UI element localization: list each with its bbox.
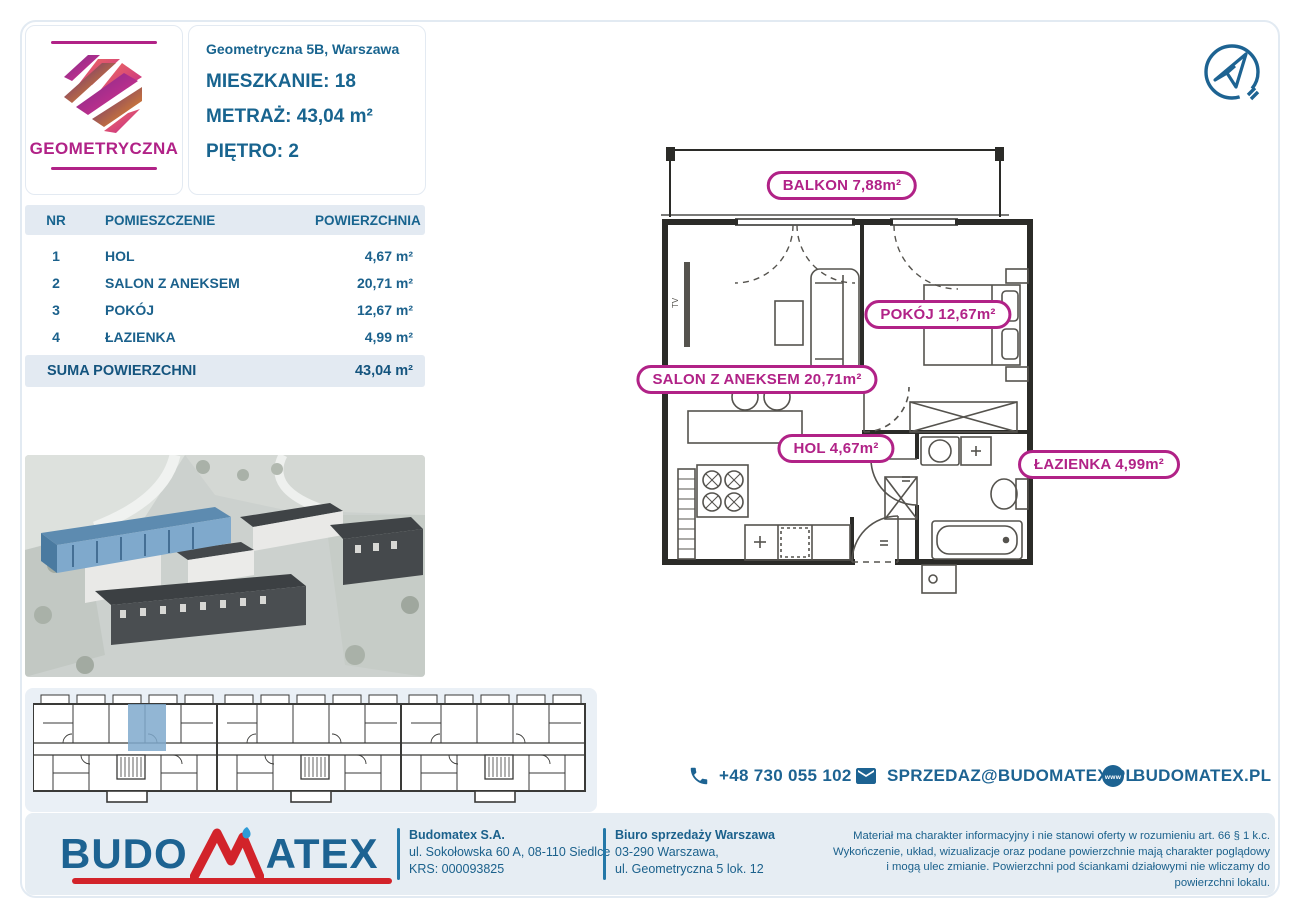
row-area: 4,99 m² <box>315 329 425 345</box>
footer-office-block: Biuro sprzedaży Warszawa 03-290 Warszawa… <box>615 827 775 878</box>
row-room: POKÓJ <box>87 302 315 318</box>
row-nr: 2 <box>25 275 87 291</box>
building-level-plan <box>33 693 589 805</box>
plan-label-hol: HOL 4,67m² <box>777 434 894 463</box>
apartment-area-label: METRAŻ: <box>206 106 291 127</box>
col-header-room: POMIESZCZENIE <box>87 213 315 228</box>
logo-rule-bottom <box>51 167 157 170</box>
budomatex-logo: BUDO ATEX <box>60 822 379 886</box>
company-address: ul. Sokołowska 60 A, 08-110 Siedlce <box>409 844 610 861</box>
apartment-area-line: METRAŻ: 43,04 m² <box>206 106 425 128</box>
developer-logo-card: GEOMETRYCZNA <box>25 25 183 195</box>
row-area: 4,67 m² <box>315 248 425 264</box>
plan-label-lazienka: ŁAZIENKA 4,99m² <box>1018 450 1180 479</box>
col-header-area: POWIERZCHNIA <box>315 213 425 228</box>
website-url: BUDOMATEX.PL <box>1133 766 1271 786</box>
logo-rule-top <box>51 41 157 44</box>
apartment-number-value: 18 <box>335 71 356 92</box>
office-name: Biuro sprzedaży Warszawa <box>615 827 775 844</box>
company-krs: KRS: 000093825 <box>409 861 610 878</box>
contact-email[interactable]: SPRZEDAZ@BUDOMATEX.PL <box>854 762 1136 790</box>
row-nr: 3 <box>25 302 87 318</box>
row-nr: 4 <box>25 329 87 345</box>
building-address: Geometryczna 5B, Warszawa <box>206 41 425 57</box>
contact-phone[interactable]: +48 730 055 102 <box>688 762 852 790</box>
apartment-floor-label: PIĘTRO: <box>206 141 283 162</box>
row-room: SALON Z ANEKSEM <box>87 275 315 291</box>
rooms-table-sum-row: SUMA POWIERZCHNI 43,04 m² <box>25 355 425 387</box>
building-level-plan-panel <box>25 688 597 812</box>
apartment-number-label: MIESZKANIE: <box>206 71 330 92</box>
aerial-photo <box>25 455 425 677</box>
www-icon: www <box>1102 765 1124 787</box>
footer-separator <box>603 828 606 880</box>
apartment-info-card: Geometryczna 5B, Warszawa MIESZKANIE: 18… <box>188 25 426 195</box>
phone-icon <box>688 765 710 787</box>
plan-label-salon: SALON Z ANEKSEM 20,71m² <box>636 365 877 394</box>
table-row: 2 SALON Z ANEKSEM 20,71 m² <box>25 269 425 296</box>
mail-icon <box>854 764 878 788</box>
email-address: SPRZEDAZ@BUDOMATEX.PL <box>887 766 1136 786</box>
tv-symbol <box>684 262 690 347</box>
table-row: 1 HOL 4,67 m² <box>25 242 425 269</box>
sum-label: SUMA POWIERZCHNI <box>25 363 355 379</box>
footer-disclaimer: Materiał ma charakter informacyjny i nie… <box>828 829 1270 891</box>
highlighted-unit <box>128 704 166 751</box>
geometryczna-logo-icon <box>58 51 150 137</box>
apartment-floor-value: 2 <box>288 141 299 162</box>
office-line2: ul. Geometryczna 5 lok. 12 <box>615 861 775 878</box>
company-name: Budomatex S.A. <box>409 827 610 844</box>
row-room: HOL <box>87 248 315 264</box>
budomatex-logo-m-icon <box>190 825 264 883</box>
footer-separator <box>397 828 400 880</box>
tv-label: TV <box>671 297 680 308</box>
row-area: 20,71 m² <box>315 275 425 291</box>
apartment-number-line: MIESZKANIE: 18 <box>206 71 425 93</box>
budomatex-logo-right: ATEX <box>266 833 379 875</box>
plan-label-balkon: BALKON 7,88m² <box>767 171 917 200</box>
table-row: 4 ŁAZIENKA 4,99 m² <box>25 323 425 350</box>
apartment-floor-line: PIĘTRO: 2 <box>206 141 425 163</box>
col-header-nr: NR <box>25 213 87 228</box>
row-nr: 1 <box>25 248 87 264</box>
developer-brand-name: GEOMETRYCZNA <box>26 139 182 159</box>
budomatex-logo-underline <box>72 878 392 884</box>
plan-label-pokoj: POKÓJ 12,67m² <box>864 300 1011 329</box>
rooms-table-body: 1 HOL 4,67 m² 2 SALON Z ANEKSEM 20,71 m²… <box>25 238 425 351</box>
office-line1: 03-290 Warszawa, <box>615 844 775 861</box>
north-arrow-icon <box>1199 39 1265 105</box>
row-room: ŁAZIENKA <box>87 329 315 345</box>
svg-text:www: www <box>1104 774 1122 781</box>
rooms-table-header: NR POMIESZCZENIE POWIERZCHNIA <box>25 205 425 235</box>
table-row: 3 POKÓJ 12,67 m² <box>25 296 425 323</box>
apartment-area-value: 43,04 m² <box>297 106 373 127</box>
phone-number: +48 730 055 102 <box>719 766 852 786</box>
footer-company-block: Budomatex S.A. ul. Sokołowska 60 A, 08-1… <box>409 827 610 878</box>
budomatex-logo-left: BUDO <box>60 833 188 875</box>
row-area: 12,67 m² <box>315 302 425 318</box>
sum-value: 43,04 m² <box>355 363 425 379</box>
contact-website[interactable]: www BUDOMATEX.PL <box>1102 762 1271 790</box>
